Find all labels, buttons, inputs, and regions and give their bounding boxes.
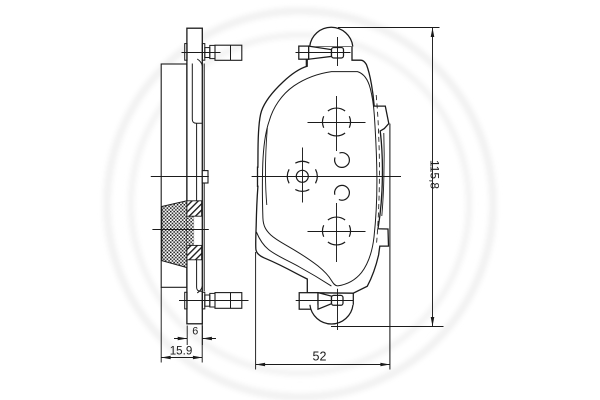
svg-text:6: 6 [192, 325, 198, 337]
svg-text:15.9: 15.9 [170, 345, 193, 358]
svg-text:115,8: 115,8 [427, 160, 441, 189]
svg-text:52: 52 [313, 350, 327, 364]
